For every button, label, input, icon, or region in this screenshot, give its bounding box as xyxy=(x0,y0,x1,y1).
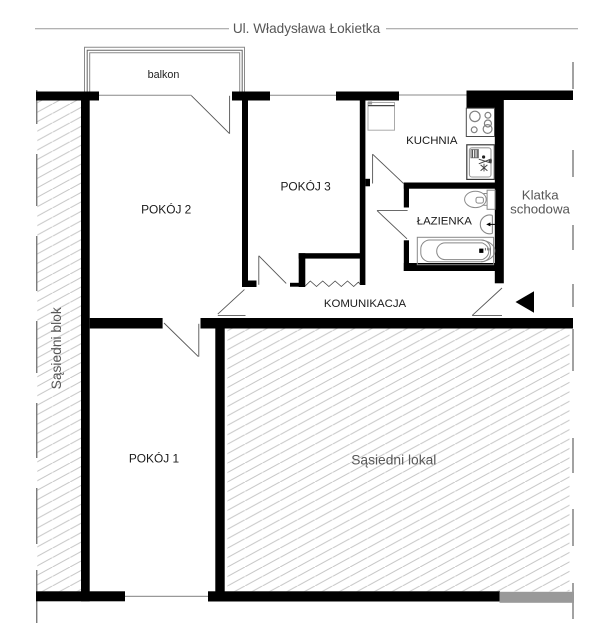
svg-text:schodowa: schodowa xyxy=(510,201,570,216)
svg-text:ŁAZIENKA: ŁAZIENKA xyxy=(417,216,472,228)
svg-text:Sąsiedni blok: Sąsiedni blok xyxy=(49,307,64,389)
svg-text:POKÓJ 2: POKÓJ 2 xyxy=(141,202,192,217)
svg-text:Sąsiedni lokal: Sąsiedni lokal xyxy=(351,453,436,468)
svg-text:Klatka: Klatka xyxy=(522,187,560,202)
svg-text:balkon: balkon xyxy=(148,69,180,81)
svg-text:POKÓJ 3: POKÓJ 3 xyxy=(280,178,331,193)
svg-text:POKÓJ 1: POKÓJ 1 xyxy=(129,451,180,466)
svg-text:KUCHNIA: KUCHNIA xyxy=(406,135,458,147)
svg-text:Ul. Władysława Łokietka: Ul. Władysława Łokietka xyxy=(233,21,381,36)
svg-text:KOMUNIKACJA: KOMUNIKACJA xyxy=(324,298,407,310)
